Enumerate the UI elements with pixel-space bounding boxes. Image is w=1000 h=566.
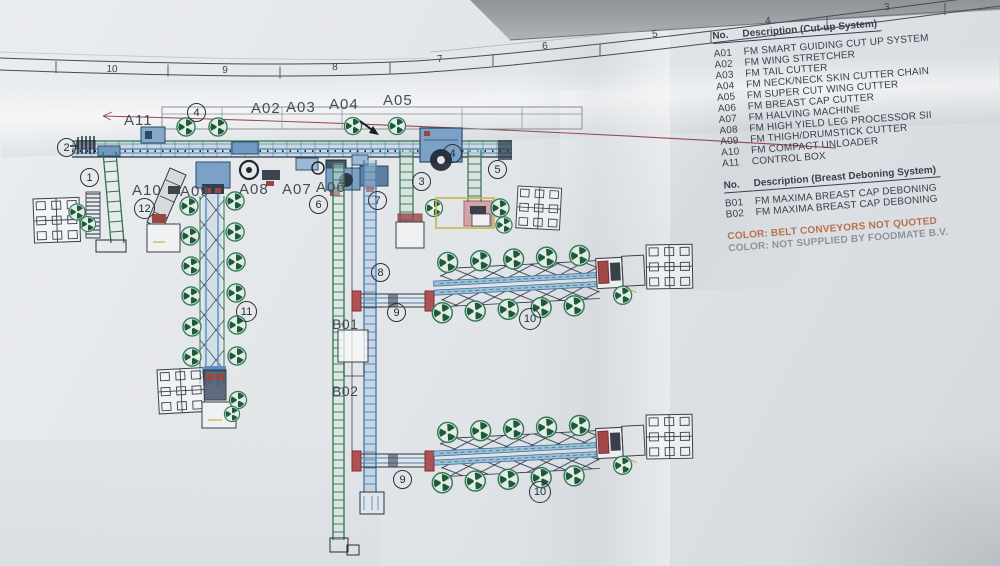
callout-11: 11 [236,301,257,322]
deboning-line-2 [428,410,695,494]
legend-cutup-items: A01FM SMART GUIDING CUT UP SYSTEM A02FM … [713,27,1000,170]
ruler-number: 8 [324,62,346,74]
deboning-line-1 [428,240,695,324]
photographed-layout-sheet: 10 9 8 7 6 5 4 3 A11 A02 A03 A04 A05 A10… [0,0,1000,566]
label-a08: A08 [239,181,269,198]
label-b01: B01 [332,316,358,332]
label-a07: A07 [282,181,312,198]
label-a03: A03 [286,99,316,116]
callout-10a: 10 [519,308,541,330]
callout-6: 6 [309,195,328,214]
legend-no-header: No. [712,30,729,42]
callout-12: 12 [134,198,155,219]
callout-3: 3 [412,172,431,191]
legend: No. Description (Cut-up System) A01FM SM… [712,9,1000,255]
callout-7: 7 [368,191,387,210]
label-a05: A05 [383,92,413,109]
callout-8: 8 [371,263,390,282]
label-a10: A10 [132,182,162,199]
label-a04: A04 [329,96,359,113]
callout-4: 4 [443,144,462,163]
callout-9a: 9 [387,303,406,322]
ruler-number: 10 [101,64,123,76]
callout-4-top: 4 [187,103,206,122]
callout-9b: 9 [393,470,412,489]
label-a09: A09 [180,183,210,200]
right-drop-conveyors [396,150,562,248]
ruler-number: 9 [214,65,236,76]
label-a06: A06 [316,179,346,196]
callout-10b: 10 [529,481,551,503]
label-b02: B02 [332,383,358,399]
legend-no-header: No. [723,179,740,191]
mid-vertical-conveyors [326,160,388,555]
label-a02: A02 [251,100,281,117]
ruler-number: 6 [534,40,557,53]
ruler-number: 7 [429,53,452,66]
callout-5: 5 [488,160,507,179]
label-a11: A11 [124,112,153,129]
left-branch [33,146,186,252]
callout-2: 2 [57,138,76,157]
callout-1: 1 [80,168,99,187]
